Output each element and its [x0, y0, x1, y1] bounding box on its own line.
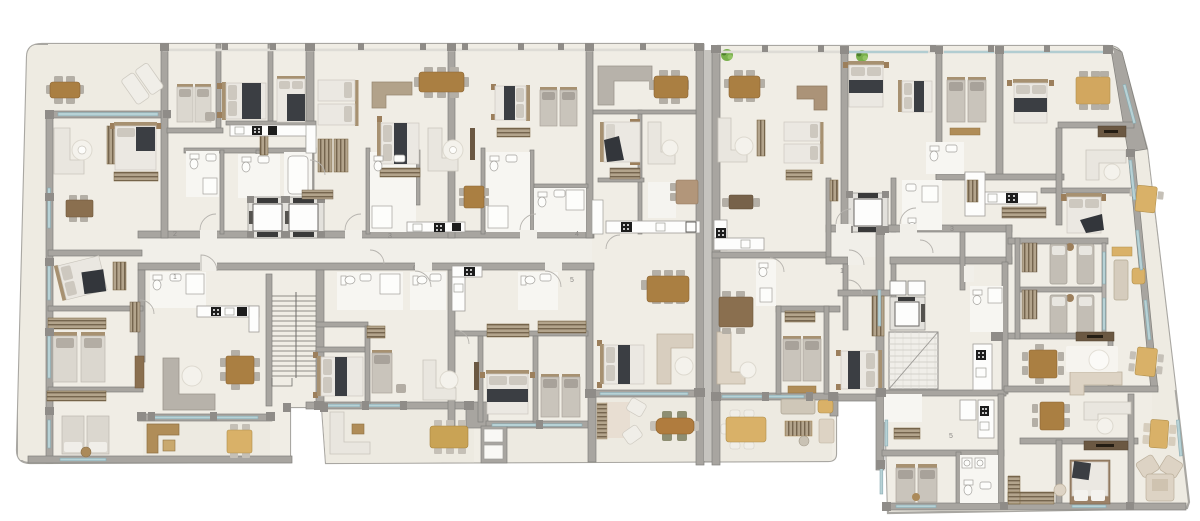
svg-text:1: 1	[840, 268, 844, 275]
svg-text:1: 1	[173, 274, 177, 281]
svg-text:5: 5	[570, 277, 574, 284]
svg-text:2: 2	[173, 231, 177, 238]
svg-text:3: 3	[950, 226, 954, 233]
svg-text:5: 5	[949, 433, 953, 440]
svg-text:3: 3	[388, 233, 392, 240]
svg-text:4: 4	[575, 231, 579, 238]
